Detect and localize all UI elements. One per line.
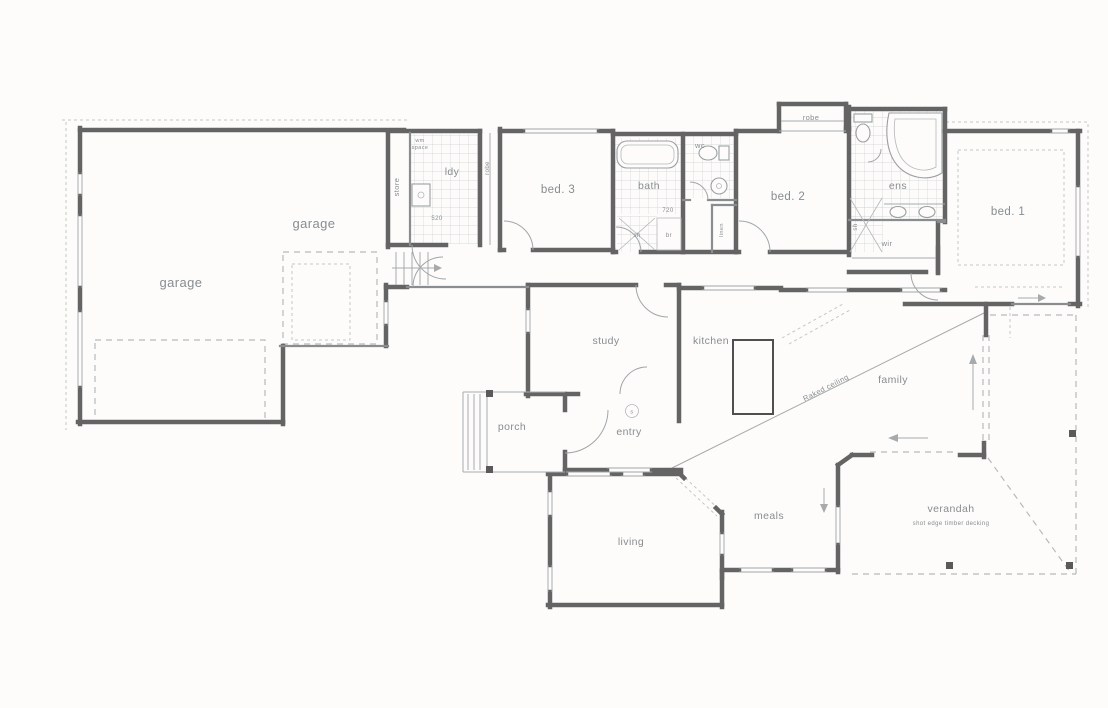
room-label-bath: bath (638, 180, 660, 192)
label-shower-bath: sh (633, 233, 640, 239)
floor-plan-sheet: garage garage store ldy wm space 520 rob… (0, 0, 1108, 708)
label-smoke-alarm: s (630, 410, 633, 416)
vanity-basin-2 (919, 207, 935, 218)
room-label-robe-bed3: robe (485, 161, 491, 175)
toilet-ens (854, 114, 872, 122)
kitchen-island (733, 340, 773, 414)
room-label-kitchen: kitchen (693, 335, 729, 347)
label-shower-ens: sh (853, 223, 859, 230)
direction-arrows (392, 264, 1046, 513)
verandah-boundary (852, 315, 1076, 574)
room-label-wc: wc (694, 141, 705, 150)
room-label-wir: wir (881, 239, 893, 248)
room-label-entry: entry (616, 426, 642, 438)
room-label-study: study (592, 335, 619, 347)
room-label-garage-rear: garage (293, 216, 336, 231)
label-broom: br (666, 233, 672, 239)
room-label-bed1: bed. 1 (991, 206, 1025, 218)
room-label-porch: porch (498, 421, 526, 433)
garage-dashed-outlines (95, 252, 377, 422)
room-label-verandah: verandah (928, 503, 975, 515)
room-label-ensuite: ens (889, 180, 907, 192)
note-raked-ceiling: Raked ceiling (801, 372, 850, 403)
floor-plan-drawing: garage garage store ldy wm space 520 rob… (0, 0, 1108, 708)
room-label-garage: garage (160, 275, 203, 290)
room-label-bed2: bed. 2 (771, 191, 805, 203)
note-wm-line1: wm (414, 138, 424, 144)
room-label-laundry: ldy (445, 166, 460, 178)
room-label-store: store (392, 178, 401, 197)
dimension-520: 520 (431, 216, 442, 222)
dimension-720: 720 (662, 208, 673, 214)
room-label-bed3: bed. 3 (541, 184, 575, 196)
room-label-meals: meals (754, 510, 784, 522)
room-label-family: family (878, 374, 908, 386)
room-label-living: living (618, 536, 644, 548)
vanity-basin-wc (711, 178, 727, 194)
note-wm-line2: space (412, 145, 429, 151)
laundry-trough (412, 184, 430, 206)
verandah-posts (486, 390, 1076, 569)
room-label-robe-bed2: robe (803, 113, 820, 122)
label-linen: linen (719, 223, 725, 237)
vanity-basin-1 (890, 207, 906, 218)
note-verandah-decking: shot edge timber decking (913, 521, 990, 527)
